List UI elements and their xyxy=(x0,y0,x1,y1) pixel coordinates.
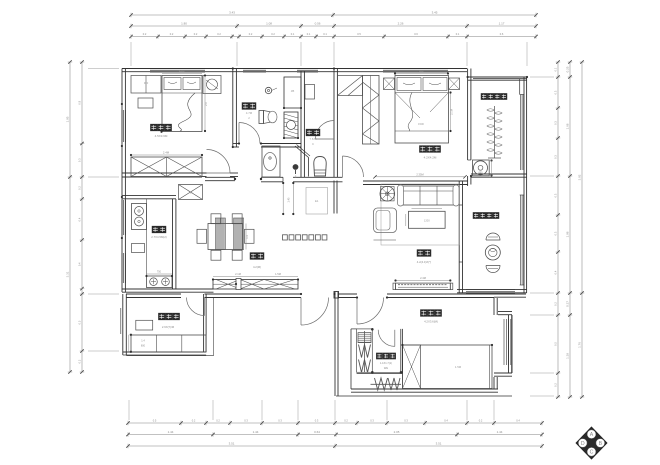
svg-text:4.2(M): 4.2(M) xyxy=(253,265,261,269)
svg-text:1.4: 1.4 xyxy=(246,235,249,239)
svg-text:0.25: 0.25 xyxy=(566,66,570,72)
svg-text:2.4M: 2.4M xyxy=(163,151,170,155)
svg-text:2.05: 2.05 xyxy=(394,430,400,434)
svg-text:1.76: 1.76 xyxy=(578,342,582,348)
svg-text:1.95: 1.95 xyxy=(66,116,70,122)
svg-text:0.2: 0.2 xyxy=(554,302,558,306)
svg-text:2.0: 2.0 xyxy=(204,102,208,106)
svg-text:0.3: 0.3 xyxy=(370,419,374,423)
svg-text:0.8: 0.8 xyxy=(78,100,82,104)
svg-text:1.98: 1.98 xyxy=(566,231,570,237)
svg-text:0.1: 0.1 xyxy=(554,67,558,71)
svg-text:0.3: 0.3 xyxy=(244,419,248,423)
svg-text:0.2: 0.2 xyxy=(271,32,275,36)
svg-text:0.2: 0.2 xyxy=(216,419,220,423)
svg-text:0.2: 0.2 xyxy=(192,419,196,423)
svg-text:0.3: 0.3 xyxy=(315,419,319,423)
svg-text:3.31: 3.31 xyxy=(66,271,70,277)
svg-text:1500: 1500 xyxy=(418,122,424,126)
svg-text:2.6X(7)/M: 2.6X(7)/M xyxy=(162,325,175,329)
svg-text:0.6: 0.6 xyxy=(414,32,418,36)
svg-text:1.39: 1.39 xyxy=(566,353,570,359)
svg-text:1.44: 1.44 xyxy=(497,430,503,434)
svg-text:3.51: 3.51 xyxy=(229,442,235,446)
svg-text:1.5M: 1.5M xyxy=(455,365,462,369)
svg-text:1.44: 1.44 xyxy=(253,430,259,434)
svg-text:0.1: 0.1 xyxy=(323,32,327,36)
svg-text:0.2: 0.2 xyxy=(78,359,82,363)
svg-text:4.7M: 4.7M xyxy=(246,111,253,115)
svg-text:1.1X1.7(1): 1.1X1.7(1) xyxy=(380,361,392,365)
svg-text:0.64: 0.64 xyxy=(314,430,320,434)
svg-text:0.2: 0.2 xyxy=(479,419,483,423)
svg-text:0.1: 0.1 xyxy=(291,32,295,36)
svg-text:0.2: 0.2 xyxy=(78,186,82,190)
svg-text:C: C xyxy=(590,450,594,456)
svg-text:0.1: 0.1 xyxy=(456,32,460,36)
svg-text:0.4: 0.4 xyxy=(444,419,448,423)
svg-text:0.2: 0.2 xyxy=(249,32,253,36)
svg-text:0.3: 0.3 xyxy=(78,158,82,162)
svg-text:0.3: 0.3 xyxy=(554,231,558,235)
svg-text:0.4: 0.4 xyxy=(78,217,82,221)
svg-text:2.7X4.5M(2): 2.7X4.5M(2) xyxy=(151,235,166,239)
svg-text:2.1M: 2.1M xyxy=(235,272,241,276)
svg-text:3.92: 3.92 xyxy=(578,174,582,180)
svg-text:0.2: 0.2 xyxy=(217,32,221,36)
svg-text:0.3: 0.3 xyxy=(554,121,558,125)
svg-text:4.5M: 4.5M xyxy=(418,69,424,73)
svg-text:0.3: 0.3 xyxy=(554,90,558,94)
svg-text:700: 700 xyxy=(188,192,193,195)
svg-text:1.5M: 1.5M xyxy=(275,272,281,276)
svg-text:0.5: 0.5 xyxy=(153,419,157,423)
svg-text:0.2: 0.2 xyxy=(344,419,348,423)
svg-text:0.3: 0.3 xyxy=(554,193,558,197)
svg-text:A: A xyxy=(590,432,594,438)
svg-text:1.68: 1.68 xyxy=(566,123,570,129)
svg-text:C: C xyxy=(312,142,314,146)
svg-text:E1: E1 xyxy=(315,199,319,203)
svg-text:0.2: 0.2 xyxy=(170,32,174,36)
svg-text:2.4M: 2.4M xyxy=(420,276,426,280)
svg-text:1200: 1200 xyxy=(424,219,430,223)
svg-text:0.4: 0.4 xyxy=(78,262,82,266)
svg-text:0.5: 0.5 xyxy=(78,320,82,324)
svg-text:600: 600 xyxy=(141,345,146,348)
svg-text:900: 900 xyxy=(144,81,149,85)
svg-text:0.5: 0.5 xyxy=(554,342,558,346)
svg-text:4.2X3.6(M): 4.2X3.6(M) xyxy=(424,320,438,324)
svg-text:0.2: 0.2 xyxy=(143,32,147,36)
svg-text:750: 750 xyxy=(157,271,162,274)
svg-text:0.3: 0.3 xyxy=(554,155,558,159)
svg-text:1.44: 1.44 xyxy=(168,430,174,434)
svg-text:0.6: 0.6 xyxy=(500,32,504,36)
svg-text:0.3: 0.3 xyxy=(278,419,282,423)
svg-text:1.45: 1.45 xyxy=(288,197,291,202)
svg-text:3.45: 3.45 xyxy=(432,11,438,15)
svg-text:D: D xyxy=(581,441,585,447)
svg-text:1.80: 1.80 xyxy=(181,22,187,26)
svg-text:1.08: 1.08 xyxy=(266,22,272,26)
svg-text:4.2X4.2M: 4.2X4.2M xyxy=(424,156,437,160)
svg-text:0.4: 0.4 xyxy=(554,270,558,274)
svg-text:3.51: 3.51 xyxy=(436,442,442,446)
svg-text:1.4: 1.4 xyxy=(141,340,145,343)
svg-text:2.35M: 2.35M xyxy=(416,173,423,177)
svg-text:1.17: 1.17 xyxy=(499,22,505,26)
svg-text:0.5: 0.5 xyxy=(357,32,361,36)
svg-text:2.26: 2.26 xyxy=(398,22,404,26)
svg-text:0.56: 0.56 xyxy=(315,22,321,26)
svg-text:0.2: 0.2 xyxy=(194,32,198,36)
svg-text:0.4: 0.4 xyxy=(516,419,520,423)
svg-text:WH: WH xyxy=(384,366,388,370)
svg-text:3.43: 3.43 xyxy=(229,11,235,15)
svg-text:0.1: 0.1 xyxy=(307,32,311,36)
svg-text:B: B xyxy=(599,441,603,447)
svg-text:2.1M: 2.1M xyxy=(449,109,453,115)
svg-text:0.37: 0.37 xyxy=(566,301,570,307)
svg-text:4.5X3.6M: 4.5X3.6M xyxy=(155,134,168,138)
svg-text:0.3: 0.3 xyxy=(404,419,408,423)
svg-text:7.8.M: 7.8.M xyxy=(310,137,318,141)
svg-text:JB: JB xyxy=(291,89,295,93)
svg-text:1.5M: 1.5M xyxy=(179,69,185,73)
svg-text:0.2: 0.2 xyxy=(554,383,558,387)
svg-text:4.2(4.4)X(*): 4.2(4.4)X(*) xyxy=(417,260,432,264)
